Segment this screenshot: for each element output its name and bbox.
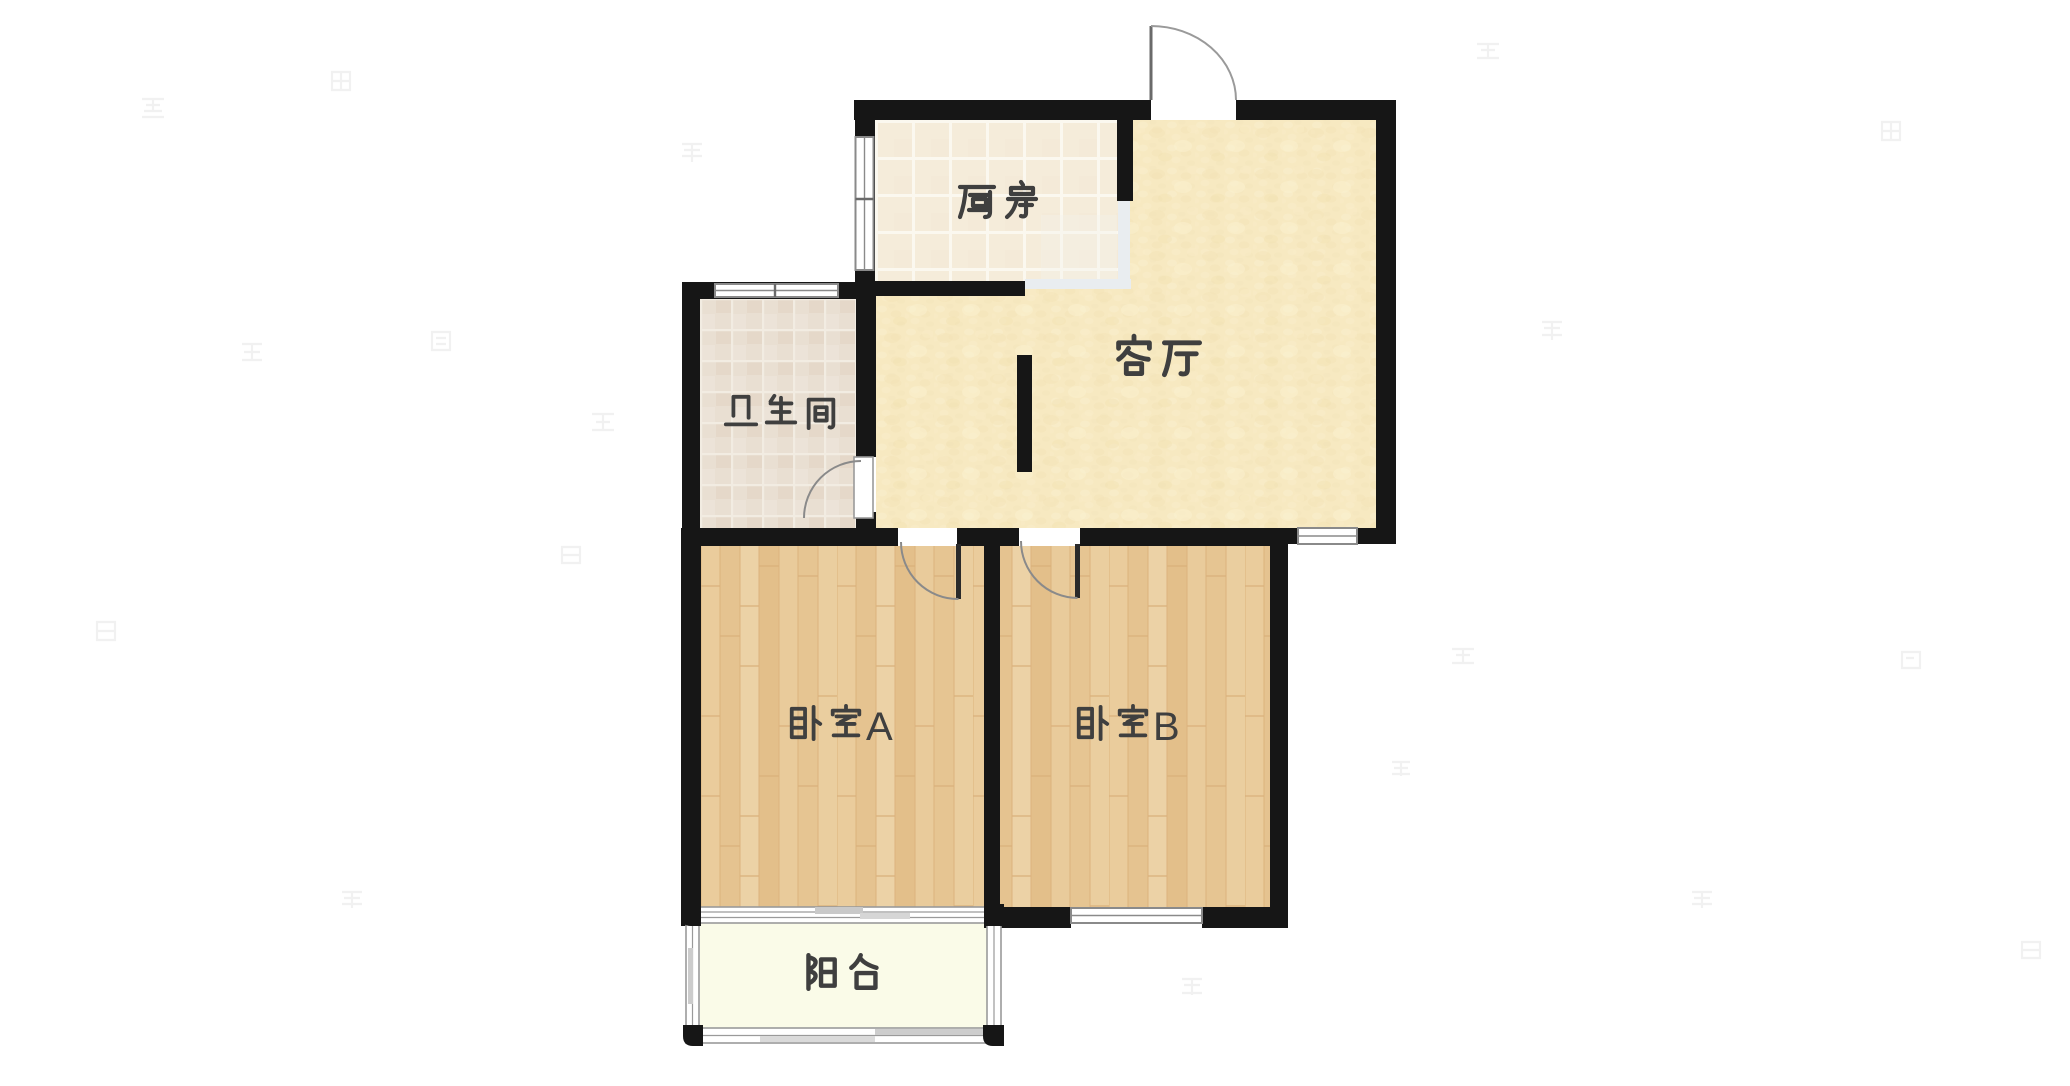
svg-text:B: B [1153,705,1180,749]
svg-text:A: A [866,705,893,749]
